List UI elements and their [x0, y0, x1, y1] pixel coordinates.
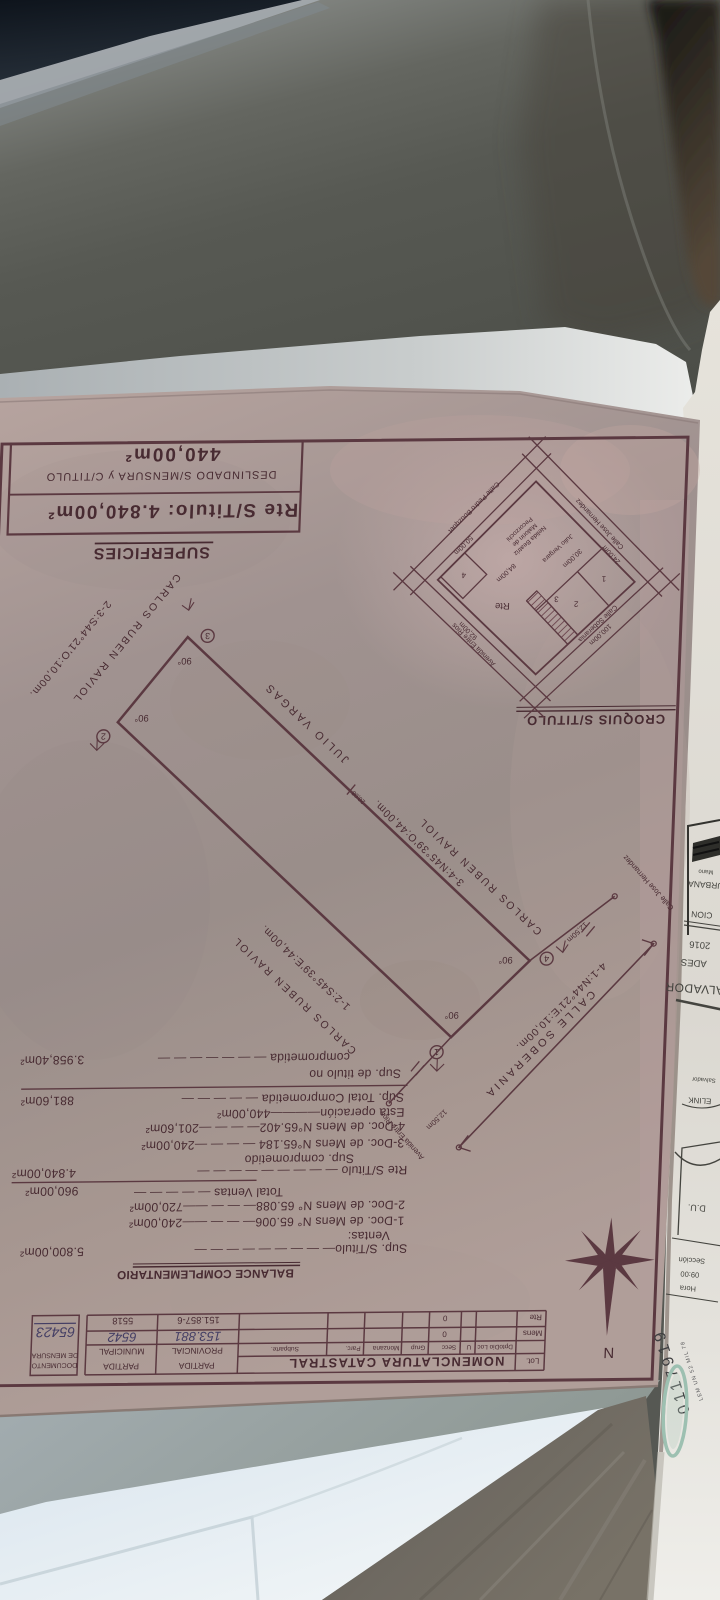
svg-text:DE MENSURA: DE MENSURA [31, 1351, 78, 1358]
svg-text:Rte S/Titulo: 4.840,00m²: Rte S/Titulo: 4.840,00m² [47, 499, 299, 523]
svg-text:960,00m²: 960,00m² [25, 1184, 79, 1199]
svg-text:Parc.: Parc. [345, 1344, 361, 1351]
svg-text:Mano: Mano [698, 867, 714, 874]
svg-text:6542: 6542 [107, 1330, 136, 1345]
svg-text:2016: 2016 [689, 938, 711, 950]
svg-text:Ventas:: Ventas: [347, 1229, 390, 1243]
svg-text:151.857-6: 151.857-6 [177, 1314, 220, 1325]
svg-text:BALANCE COMPLEMENTARIO: BALANCE COMPLEMENTARIO [117, 1266, 294, 1281]
svg-text:Sección: Sección [678, 1255, 705, 1266]
svg-text:Rte: Rte [495, 600, 510, 611]
svg-text:CROQUIS S/TITULO: CROQUIS S/TITULO [526, 712, 665, 728]
svg-text:4: 4 [544, 954, 549, 964]
svg-text:5.800,00m²: 5.800,00m² [20, 1245, 84, 1260]
svg-text:comprometida — — — — — — —: comprometida — — — — — — — [157, 1050, 350, 1066]
svg-text:PARTIDA: PARTIDA [103, 1361, 140, 1371]
svg-text:CION: CION [691, 909, 713, 920]
svg-text:881,60m²: 881,60m² [20, 1094, 74, 1109]
svg-text:4.840,00m²: 4.840,00m² [12, 1166, 76, 1181]
svg-text:Rte: Rte [529, 1313, 542, 1322]
svg-text:D.U.: D.U. [687, 1202, 706, 1213]
svg-text:Grup: Grup [410, 1344, 425, 1351]
svg-text:DOCUMENTO: DOCUMENTO [31, 1361, 77, 1368]
svg-text:3-Doc. de Mens N°65.184 — — —: 3-Doc. de Mens N°65.184 — — — —240,00m² [141, 1136, 404, 1153]
svg-text:4-Doc. de Mens N°65.402— — — —: 4-Doc. de Mens N°65.402— — — —201,60m² [145, 1119, 405, 1136]
svg-text:Sup. comprometido: Sup. comprometido [244, 1151, 354, 1166]
svg-text:440,00m²: 440,00m² [123, 443, 221, 465]
svg-text:Mens: Mens [523, 1329, 543, 1338]
svg-text:Hora: Hora [679, 1283, 697, 1293]
svg-text:1-Doc. de Mens N° 65.006— — —: 1-Doc. de Mens N° 65.006— — — ——240,00m² [129, 1214, 405, 1231]
svg-text:Sup. S/Titulo— — — — — — — — —: Sup. S/Titulo— — — — — — — — — [193, 1241, 407, 1257]
svg-text:SUPERFICIES: SUPERFICIES [93, 543, 211, 561]
svg-text:MUNICIPAL: MUNICIPAL [98, 1346, 144, 1356]
svg-text:2: 2 [101, 731, 106, 741]
svg-text:09:00: 09:00 [680, 1269, 699, 1279]
svg-text:Subparte.: Subparte. [271, 1345, 300, 1352]
svg-text:U: U [466, 1343, 471, 1350]
svg-text:90°: 90° [177, 655, 192, 666]
svg-text:Total Ventas — — — — —: Total Ventas — — — — — [133, 1185, 283, 1200]
svg-text:Sup. de titulo no: Sup. de titulo no [309, 1066, 401, 1081]
svg-text:153.881: 153.881 [174, 1329, 221, 1344]
svg-text:PROVINCIAL: PROVINCIAL [171, 1346, 223, 1357]
svg-text:3: 3 [205, 631, 210, 641]
svg-text:DptoDio Loc: DptoDio Loc [476, 1343, 513, 1350]
svg-text:PARTIDA: PARTIDA [178, 1361, 215, 1371]
svg-text:5518: 5518 [112, 1315, 133, 1326]
svg-text:Lot.: Lot. [526, 1356, 540, 1365]
svg-text:N: N [603, 1344, 614, 1361]
svg-text:DESLINDADO S/MENSURA y C/TITUL: DESLINDADO S/MENSURA y C/TITULO [46, 468, 277, 482]
svg-text:ADES: ADES [681, 956, 708, 969]
svg-text:Monzana: Monzana [372, 1344, 399, 1351]
svg-text:Sup. Total Comprometida — — —: Sup. Total Comprometida — — — — — [181, 1090, 405, 1106]
svg-text:90°: 90° [444, 1009, 459, 1020]
svg-text:ELINK: ELINK [687, 1095, 711, 1106]
svg-text:Esta operación————440,00m²: Esta operación————440,00m² [217, 1105, 405, 1121]
svg-text:NOMENCLATURA CATASTRAL: NOMENCLATURA CATASTRAL [288, 1354, 505, 1371]
svg-text:90°: 90° [134, 712, 149, 723]
svg-text:90°: 90° [498, 954, 513, 965]
svg-text:65423: 65423 [36, 1324, 76, 1340]
svg-text:3.958,40m²: 3.958,40m² [20, 1053, 84, 1068]
svg-text:Secc: Secc [441, 1343, 456, 1350]
